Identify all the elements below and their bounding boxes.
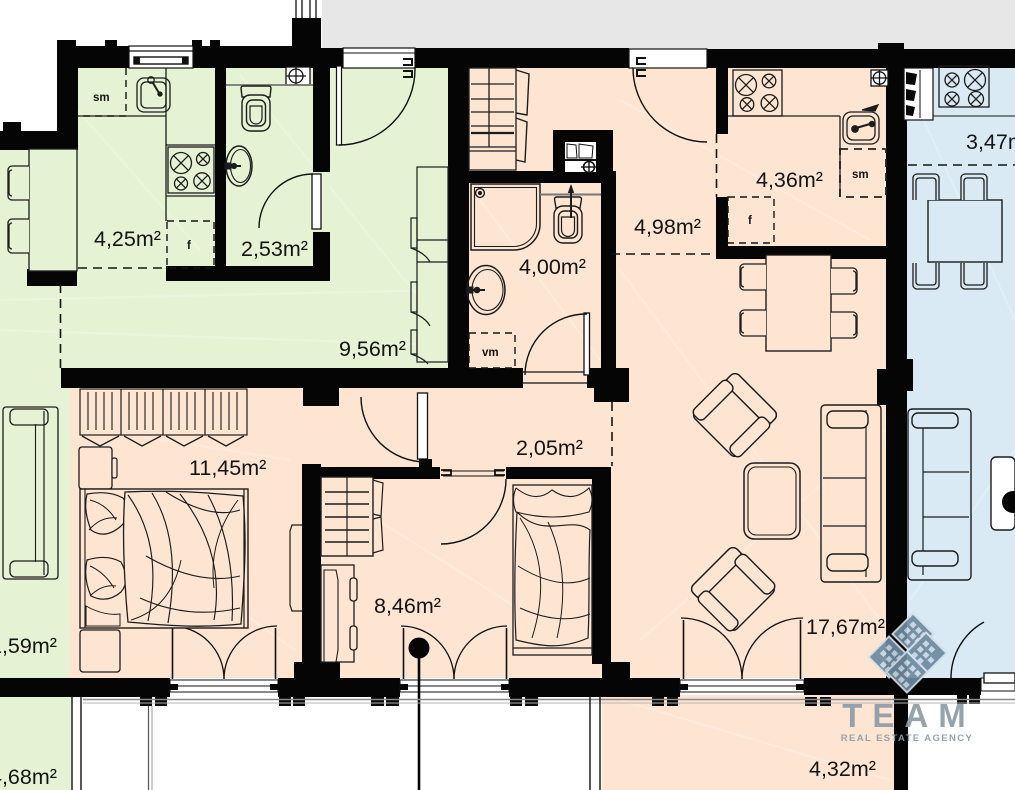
svg-text:8,46m²: 8,46m² bbox=[374, 594, 441, 618]
svg-text:17,67m²: 17,67m² bbox=[806, 615, 885, 639]
svg-text:TEAM: TEAM bbox=[842, 697, 976, 734]
svg-text:11,45m²: 11,45m² bbox=[189, 456, 266, 480]
svg-text:4,32m²: 4,32m² bbox=[809, 757, 876, 781]
svg-text:2,05m²: 2,05m² bbox=[516, 436, 583, 460]
svg-text:vm: vm bbox=[482, 347, 499, 359]
svg-text:4,00m²: 4,00m² bbox=[519, 255, 586, 279]
svg-text:4,25m²: 4,25m² bbox=[94, 227, 161, 251]
svg-text:4,68m²: 4,68m² bbox=[0, 765, 57, 789]
svg-text:3,47m²: 3,47m² bbox=[966, 130, 1015, 154]
svg-text:9,56m²: 9,56m² bbox=[339, 337, 406, 361]
svg-text:REAL ESTATE AGENCY: REAL ESTATE AGENCY bbox=[841, 733, 974, 744]
svg-text:4,98m²: 4,98m² bbox=[634, 215, 701, 239]
svg-text:f: f bbox=[748, 215, 752, 227]
svg-text:sm: sm bbox=[93, 92, 110, 104]
svg-text:2,53m²: 2,53m² bbox=[241, 237, 308, 261]
svg-text:4,36m²: 4,36m² bbox=[756, 168, 823, 192]
svg-text:1,59m²: 1,59m² bbox=[0, 634, 57, 658]
svg-text:f: f bbox=[187, 240, 191, 252]
svg-text:sm: sm bbox=[852, 169, 869, 181]
